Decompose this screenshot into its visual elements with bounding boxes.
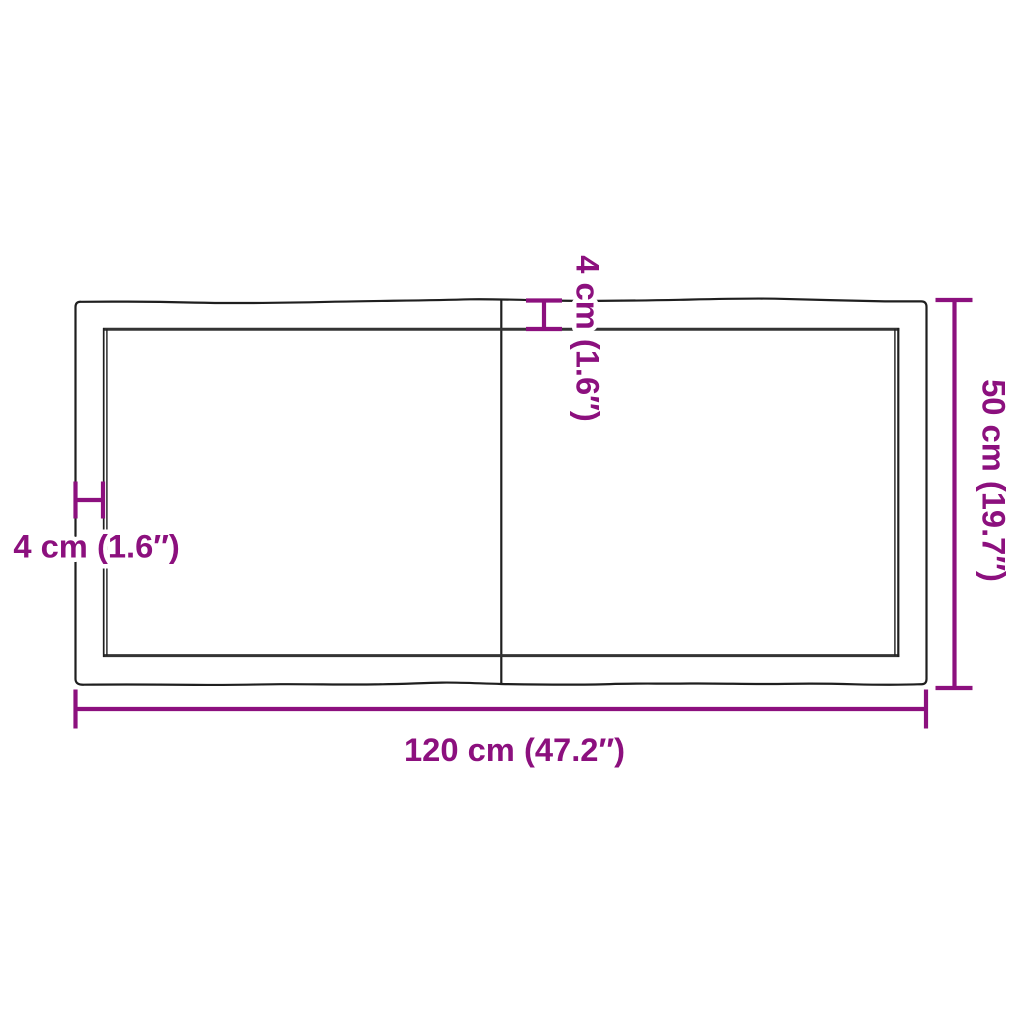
svg-text:50 cm (19.7″): 50 cm (19.7″) (976, 379, 1013, 582)
svg-text:4 cm (1.6″): 4 cm (1.6″) (13, 528, 179, 565)
svg-text:120 cm (47.2″): 120 cm (47.2″) (404, 731, 625, 768)
svg-text:4 cm (1.6″): 4 cm (1.6″) (570, 255, 607, 421)
